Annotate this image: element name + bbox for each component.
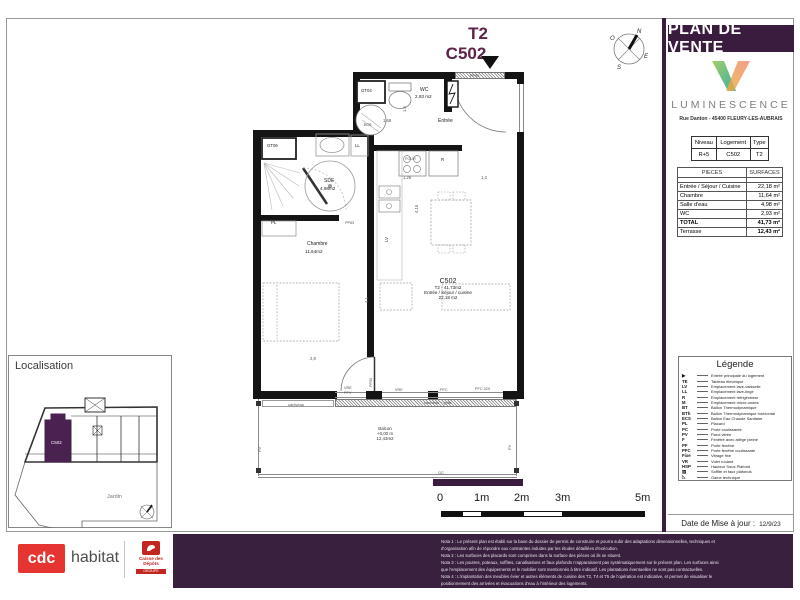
dim-126: 1,26	[403, 175, 411, 180]
label-pv-left: PV	[258, 447, 262, 452]
unit-info-room-area: 22,18 m2	[400, 295, 496, 300]
chair-icon	[453, 245, 465, 253]
table-icon	[431, 200, 471, 245]
balcony-info-block: Balcon +0,00 m 12,43m2	[358, 426, 412, 441]
entrance-door-arc	[454, 80, 506, 132]
chair-icon	[453, 192, 465, 200]
label-four: FOUR	[405, 157, 416, 161]
surfaces-row: WC 2,93 m²	[678, 210, 783, 219]
surfaces-row-total: TOTAL 41,73 m²	[678, 219, 783, 228]
cdc-habitat-wordmark: habitat	[71, 549, 119, 567]
note-line: Nota 1 : Le présent plan est établi sur …	[441, 538, 787, 545]
label-wc-area: 2,93 m2	[415, 94, 432, 99]
page-title: PLAN DE VENTE	[668, 25, 794, 52]
scale-tick-0: 0	[437, 492, 443, 504]
caisse-groupe: GROUPE	[136, 569, 166, 574]
caisse-des-depots-logo: Caisse des Dépôts GROUPE	[133, 540, 169, 574]
label-chambre-area: 11,64m2	[305, 249, 323, 254]
label-gt04: GT04	[361, 89, 372, 94]
surfaces-header-surfaces: SURFACES	[747, 168, 783, 178]
legend-item: ◺Gaine technique	[682, 475, 788, 480]
dim-415: 4,15	[414, 205, 419, 213]
compass-icon: N O E S	[606, 24, 652, 72]
scale-bar-segment	[441, 511, 462, 517]
garden-label: Jardin	[107, 494, 122, 500]
unit-table-header-type: Type	[750, 137, 768, 149]
localisation-inset: Localisation C502 Jardin	[8, 355, 172, 528]
unit-summary-table: Niveau Logement Type R+5 C502 T2	[691, 136, 769, 161]
surfaces-row: Chambre 11,64 m²	[678, 192, 783, 201]
label-wc: WC	[420, 88, 428, 94]
label-caniveau: caniveau	[288, 402, 304, 407]
luminescence-logo-icon	[709, 60, 753, 92]
highlighted-unit-label: C502	[51, 440, 62, 445]
sink-icon	[379, 186, 400, 198]
dim-13: 1,3	[481, 175, 487, 180]
scale-bar-segment	[482, 511, 523, 517]
chair-icon	[438, 192, 450, 200]
label-pp63: PP63	[345, 221, 354, 225]
toilet-tank	[389, 83, 411, 91]
legend-panel: Légende ▶Entrée principale du logement T…	[678, 356, 792, 481]
frame-right	[793, 18, 794, 532]
date-row: Date de Mise à jour : 12/9/23	[668, 519, 794, 528]
note-line: Nota 2 : Les surfaces des placards sont …	[441, 552, 787, 559]
note-line: Nota 3 : Les poutres, poteaux, soffites,…	[441, 559, 787, 566]
legend-title: Légende	[682, 359, 788, 370]
dim-168: 1,68	[383, 118, 391, 123]
water-heater-ecs	[356, 105, 386, 135]
note-line: d'organisation afin de répondre aux cont…	[441, 545, 787, 552]
note-line: que l'emplacement des équipements et le …	[441, 566, 787, 573]
scale-bar-segment	[462, 511, 482, 517]
scale-bar-segment	[523, 511, 563, 517]
surfaces-row: Salle d'eau 4,98 m²	[678, 201, 783, 210]
label-pv-right: PV	[508, 445, 512, 450]
caisse-swan-icon	[141, 540, 161, 556]
surfaces-row: Entrée / Séjour / Cuisine 22,18 m²	[678, 183, 783, 192]
surfaces-table: PIECES SURFACES Entrée / Séjour / Cuisin…	[677, 167, 783, 237]
brand-address: Rue Danton - 45400 FLEURY-LES-AUBRAIS	[668, 116, 794, 122]
section-marker	[433, 479, 523, 486]
label-sde-area: 4,98m2	[320, 186, 335, 191]
localisation-title: Localisation	[15, 360, 73, 372]
toilet-icon	[389, 92, 411, 109]
chair-icon	[438, 245, 450, 253]
scale-tick-5m: 5m	[635, 492, 650, 504]
compass-n: N	[637, 29, 642, 35]
dim-28: 2,8	[310, 356, 316, 361]
unit-table-value-niveau: R+5	[692, 149, 717, 161]
label-caniveau-grille: caniveau + grille	[424, 401, 452, 405]
oven-icon	[399, 151, 426, 176]
closet-pl	[262, 221, 296, 236]
dim-16: 1,6	[402, 106, 407, 112]
sidebar-divider	[662, 18, 666, 532]
duct-icon: ◺	[682, 474, 697, 480]
localisation-compass-icon	[140, 505, 154, 519]
fridge-slot	[429, 151, 458, 176]
brand-name: LUMINESCENCE	[668, 99, 794, 111]
washbasin-icon	[320, 138, 344, 153]
sidebar-divider-line	[668, 514, 794, 515]
kitchen-counter	[377, 151, 402, 280]
surfaces-row-terrasse: Terrasse 12,43 m²	[678, 228, 783, 237]
bed-icon	[263, 283, 339, 341]
frame-bottom	[6, 531, 794, 532]
label-gt06: GT06	[267, 144, 278, 149]
label-ecs: ECS	[364, 124, 371, 128]
sink-icon	[379, 200, 400, 212]
unit-info-block: C502 T2 - 41,73m2 Entrée / Séjour / cuis…	[400, 278, 496, 300]
unit-info-number: C502	[400, 278, 496, 285]
label-fridge: R	[441, 158, 444, 163]
label-pfc-329: PFC 329	[475, 387, 490, 391]
label-ll: LL	[355, 144, 360, 149]
scale-tick-3m: 3m	[555, 492, 570, 504]
label-vre-living: VRE	[395, 388, 403, 392]
dim-41: 4,1	[364, 297, 369, 303]
label-sde: SDE	[324, 179, 334, 185]
label-pp90-bedroom: PP90	[369, 378, 373, 387]
label-chambre: Chambre	[307, 242, 328, 248]
label-entree: Entrée	[438, 119, 453, 125]
highlighted-unit	[45, 414, 71, 462]
label-pfv: PFV	[344, 391, 351, 395]
logo-divider	[124, 541, 125, 578]
surfaces-header-pieces: PIECES	[678, 168, 747, 178]
garden-outline	[15, 462, 157, 528]
compass-s: S	[617, 65, 621, 71]
notes-panel: Nota 1 : Le présent plan est établi sur …	[173, 534, 793, 588]
compass-e: E	[644, 54, 649, 60]
soffit-fan-hatch	[264, 163, 300, 210]
label-gc: GC	[438, 470, 444, 475]
balcony-area: 12,43m2	[358, 436, 412, 441]
scale-tick-2m: 2m	[514, 492, 529, 504]
unit-table-value-logement: C502	[716, 149, 750, 161]
note-line: positionnement des arrivées et évacuatio…	[441, 580, 787, 587]
label-vre-bedroom: VRE	[344, 386, 352, 390]
label-pl: PL	[271, 221, 276, 226]
scale-bar-segment	[563, 511, 645, 517]
unit-table-header-logement: Logement	[716, 137, 750, 149]
note-line: Nota 4 : L'implantation des meubles évie…	[441, 573, 787, 580]
label-lv: LV	[385, 237, 390, 242]
date-value: 12/9/23	[759, 521, 781, 528]
scale-tick-1m: 1m	[474, 492, 489, 504]
localisation-map: C502 Jardin	[9, 376, 171, 528]
label-pp90-entrance: PP90	[470, 74, 479, 78]
label-pfc: PFC	[440, 388, 448, 392]
unit-table-value-type: T2	[750, 149, 768, 161]
compass-o: O	[610, 36, 615, 42]
date-label: Date de Mise à jour :	[681, 519, 755, 528]
cdc-habitat-logo: cdc	[18, 544, 65, 573]
unit-table-header-niveau: Niveau	[692, 137, 717, 149]
caisse-name: Caisse des Dépôts	[133, 556, 169, 567]
